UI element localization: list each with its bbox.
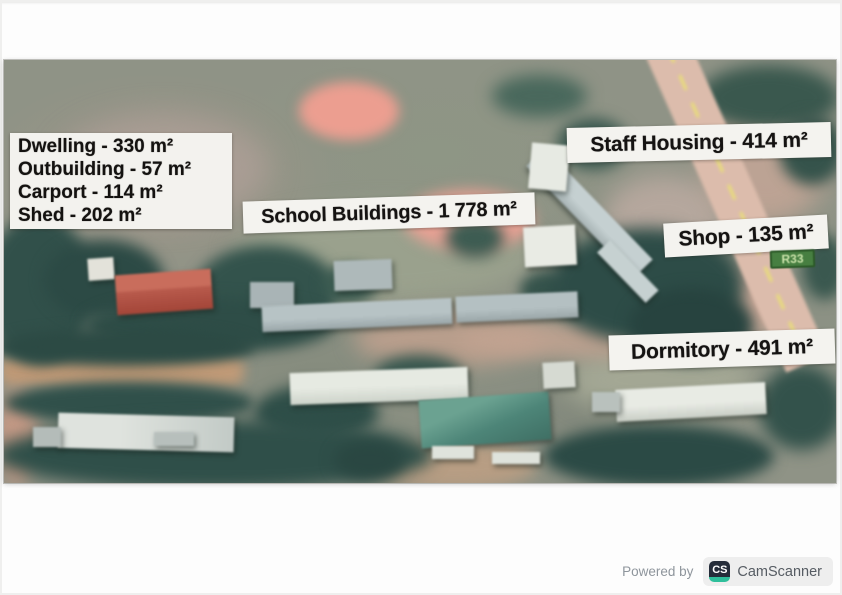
tree-blob <box>334 440 404 480</box>
building-dormitory <box>615 382 766 422</box>
bare-ground-patch <box>299 82 399 140</box>
label-dwelling-group: Dwelling - 330 m² Outbuilding - 57 m² Ca… <box>10 133 232 229</box>
powered-by-text: Powered by <box>622 564 693 579</box>
building-shed-left-small <box>154 432 194 446</box>
building-shed-left-long <box>58 413 235 453</box>
camscanner-badge: CS CamScanner <box>703 557 833 586</box>
building-small-white <box>492 452 540 464</box>
tree-blob <box>492 75 587 117</box>
label-staff-housing: Staff Housing - 414 m² <box>567 122 832 163</box>
road-sign-r33: R33 <box>770 249 816 269</box>
tree-blob <box>759 365 836 450</box>
label-dormitory: Dormitory - 491 m² <box>609 328 836 370</box>
building-shed-left-small <box>33 427 61 447</box>
camscanner-brand-text: CamScanner <box>737 564 822 580</box>
tree-blob <box>544 425 774 483</box>
label-outbuilding: Outbuilding - 57 m² <box>18 158 232 181</box>
camscanner-logo-icon: CS <box>709 561 730 582</box>
camscanner-watermark: Powered by CS CamScanner <box>622 557 833 586</box>
building-school-block-a <box>333 259 392 291</box>
building-small-gray <box>542 361 575 389</box>
building-dwelling <box>115 269 214 316</box>
label-carport: Carport - 114 m² <box>18 181 232 204</box>
tree-blob <box>4 328 254 366</box>
building-outbuilding <box>87 257 114 281</box>
building-shop-white-left <box>523 225 577 268</box>
label-dwelling: Dwelling - 330 m² <box>18 135 232 158</box>
scanned-page: Dwelling - 330 m² Outbuilding - 57 m² Ca… <box>0 0 842 595</box>
building-school-block-d <box>455 291 578 322</box>
aerial-photo: Dwelling - 330 m² Outbuilding - 57 m² Ca… <box>4 60 836 483</box>
building-hall-teal <box>418 392 551 449</box>
building-small-white <box>432 446 474 459</box>
building-shop-white-top <box>528 142 570 191</box>
label-shed: Shed - 202 m² <box>18 204 232 227</box>
building-dormitory-annex <box>592 392 620 412</box>
